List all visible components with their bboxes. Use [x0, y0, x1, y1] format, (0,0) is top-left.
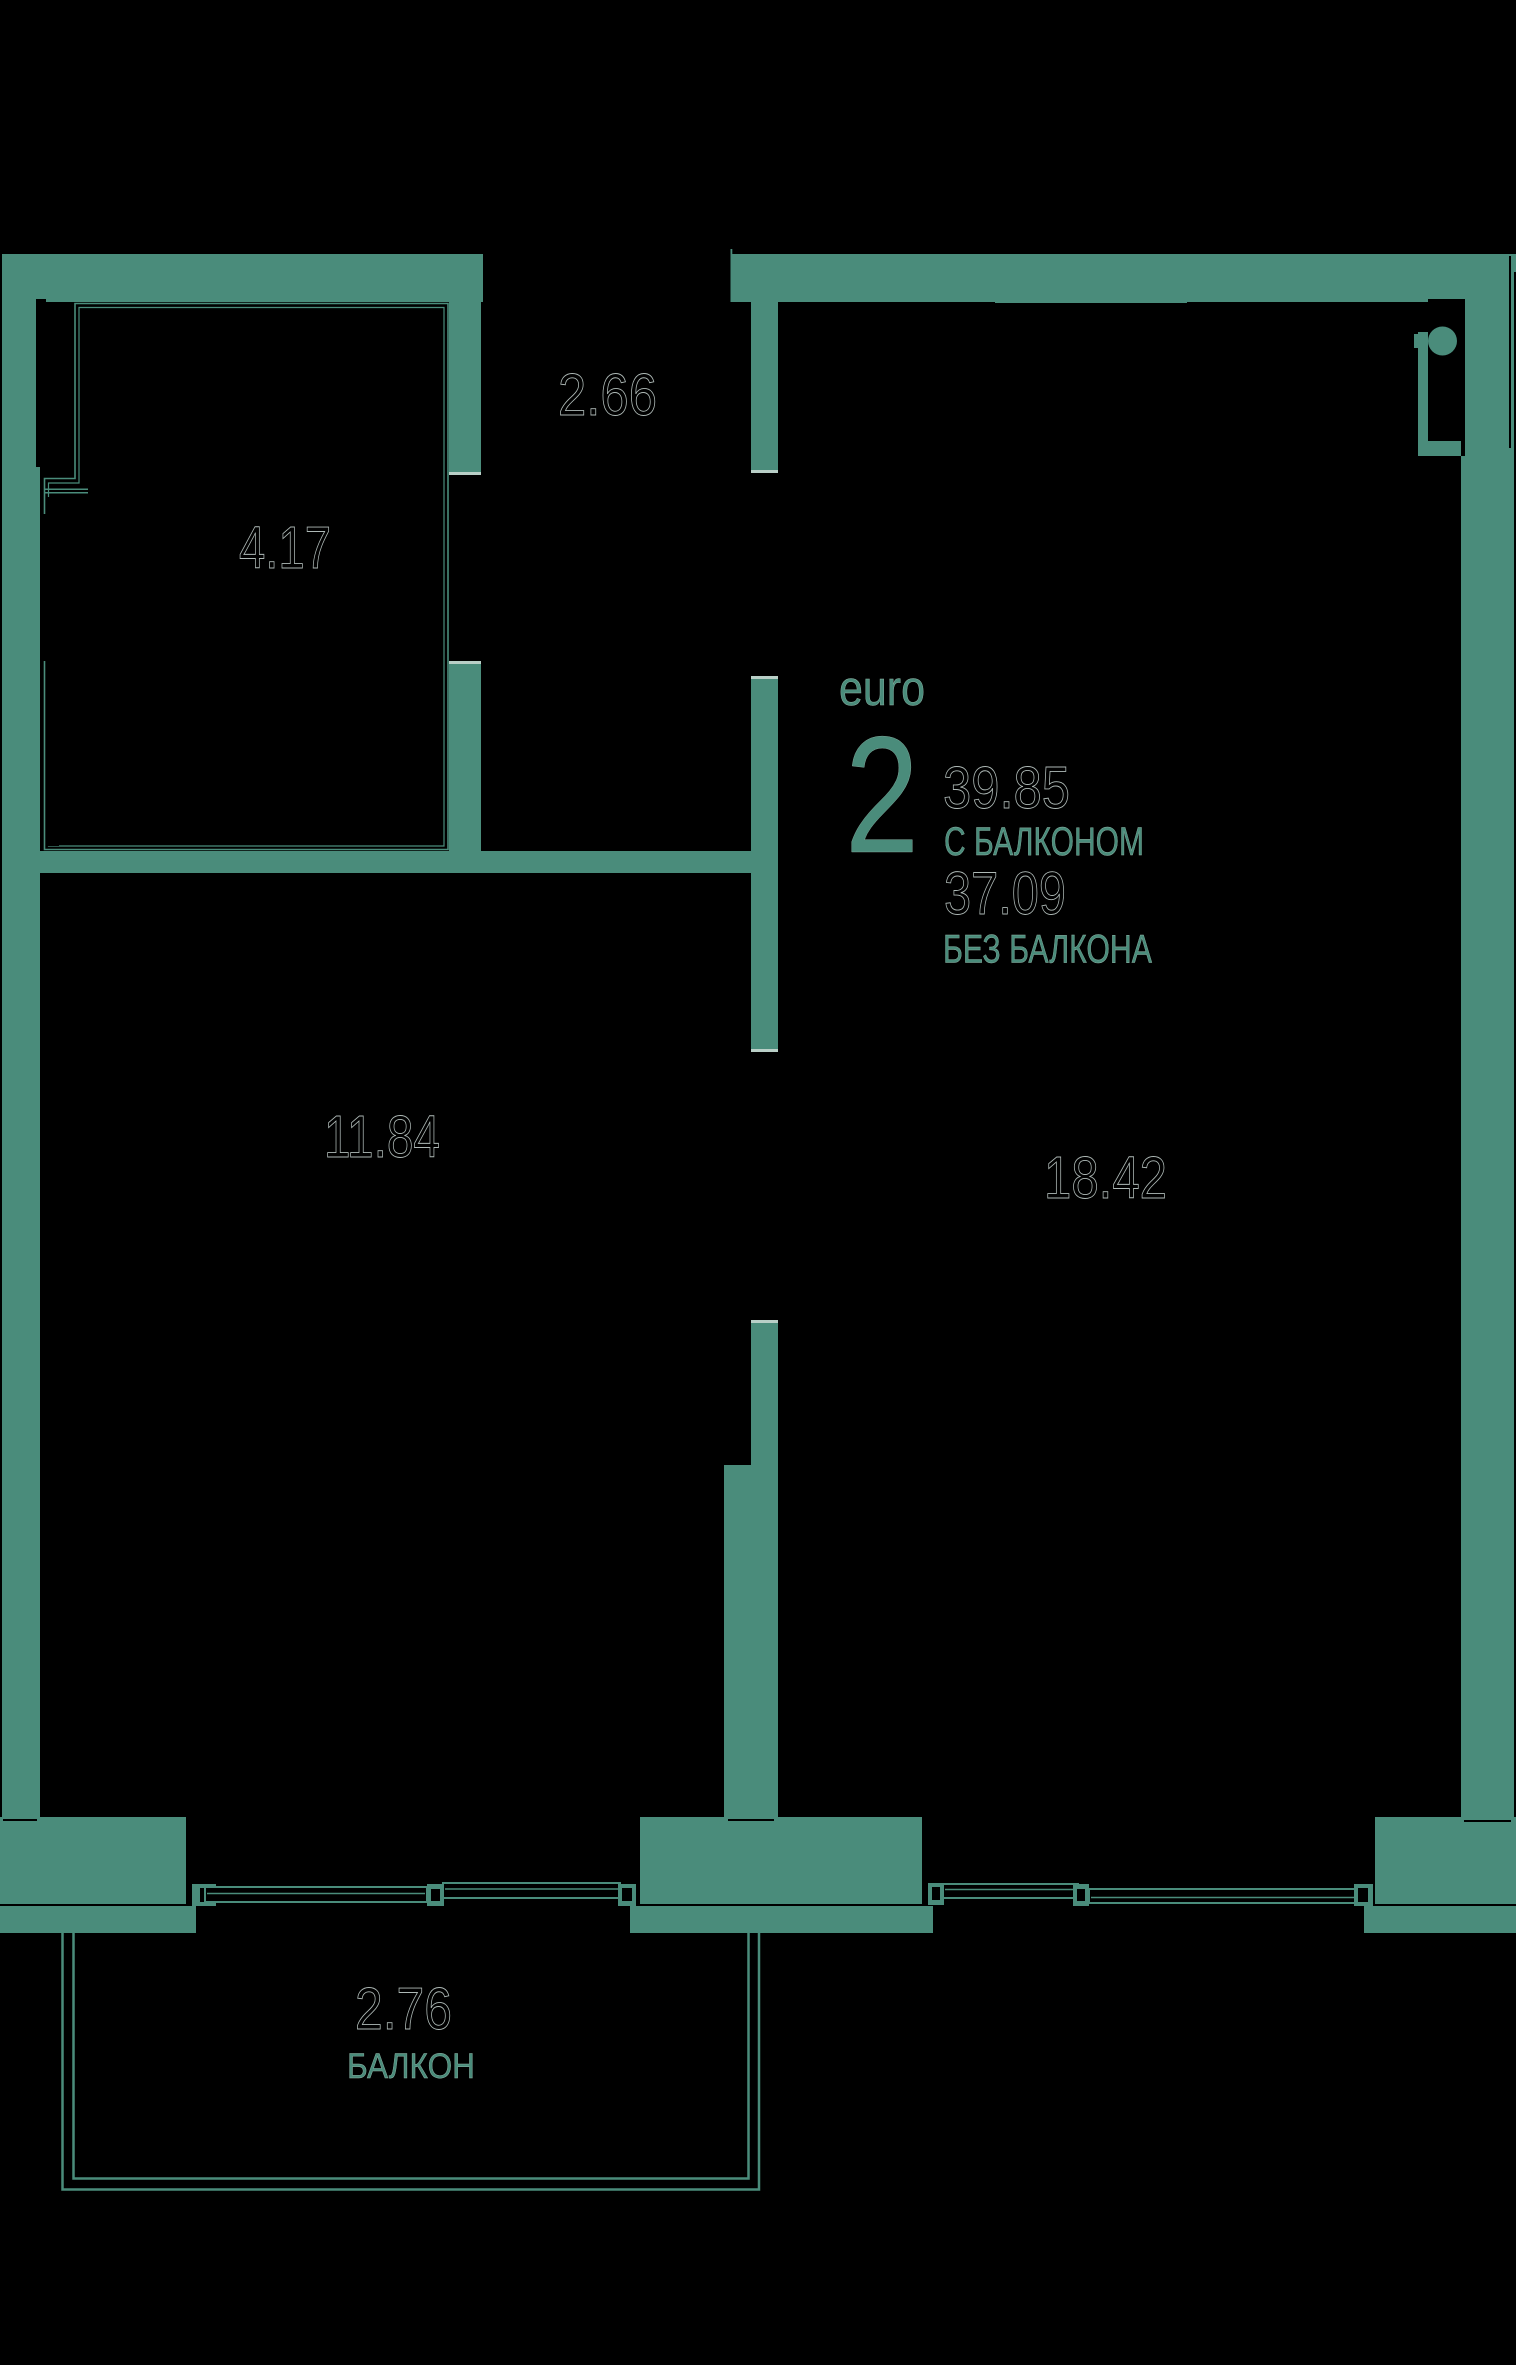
svg-text:БАЛКОН: БАЛКОН	[347, 2047, 475, 2086]
svg-text:18.42: 18.42	[1044, 1145, 1167, 1211]
svg-text:2.66: 2.66	[558, 362, 657, 428]
svg-text:11.84: 11.84	[324, 1104, 440, 1170]
svg-text:2.76: 2.76	[355, 1976, 452, 2042]
svg-text:2: 2	[845, 703, 919, 888]
svg-text:БЕЗ БАЛКОНА: БЕЗ БАЛКОНА	[943, 928, 1152, 972]
svg-text:4.17: 4.17	[239, 515, 331, 581]
svg-text:39.85: 39.85	[943, 755, 1070, 821]
svg-text:37.09: 37.09	[944, 860, 1066, 927]
svg-text:С БАЛКОНОМ: С БАЛКОНОМ	[944, 820, 1144, 864]
